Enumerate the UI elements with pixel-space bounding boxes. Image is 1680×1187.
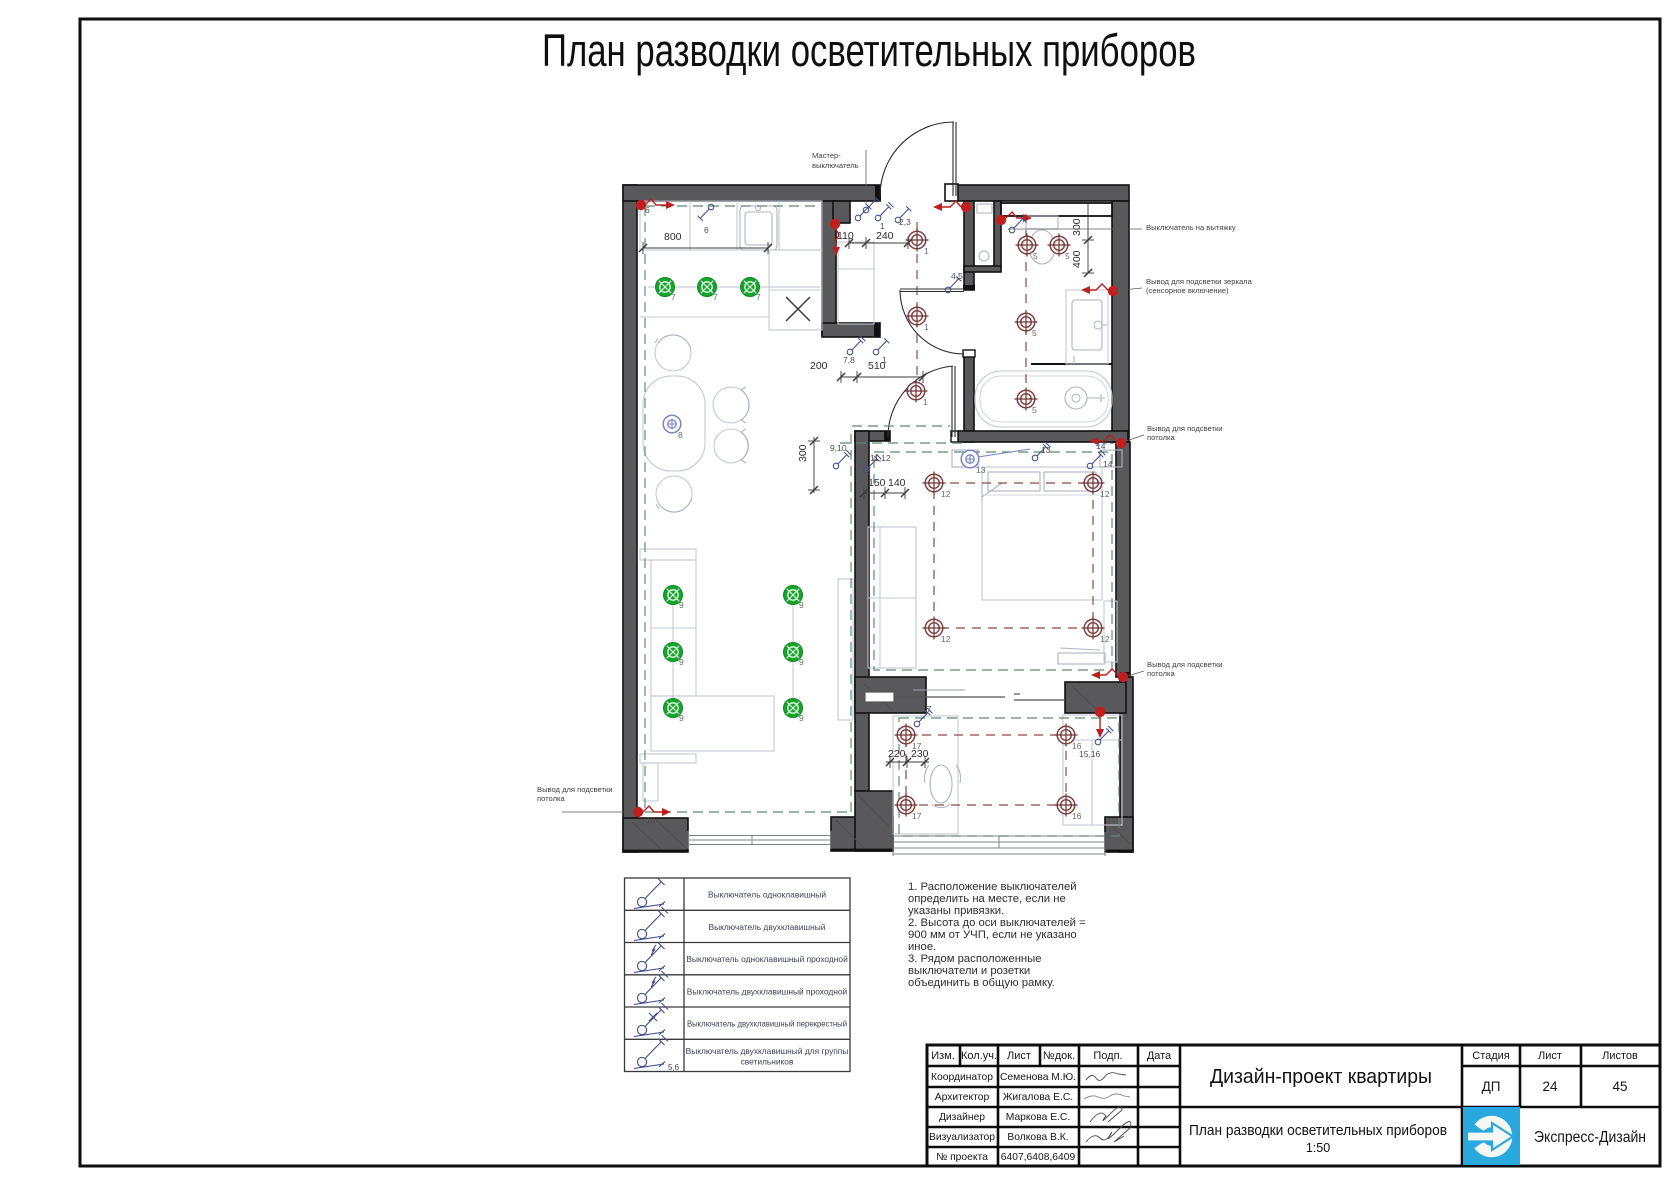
svg-text:5,6: 5,6 [668,1063,680,1072]
svg-text:Дизайн-проект квартиры: Дизайн-проект квартиры [1210,1066,1432,1088]
svg-text:9: 9 [679,600,684,610]
svg-text:объединить в общую рамку.: объединить в общую рамку. [908,977,1055,989]
svg-text:Экспресс-Дизайн: Экспресс-Дизайн [1534,1129,1646,1146]
svg-text:1: 1 [924,322,929,332]
svg-text:9: 9 [679,713,684,723]
svg-text:Выключатель двухклавишный пере: Выключатель двухклавишный перекрестный [687,1019,847,1029]
svg-text:Выключатель двухклавишный прох: Выключатель двухклавишный проходной [687,986,848,996]
svg-text:7: 7 [756,292,761,302]
svg-text:№ проекта: № проекта [936,1152,988,1163]
svg-text:12: 12 [1100,489,1110,499]
svg-text:110: 110 [837,230,854,242]
svg-text:Выключатель двухклавишный: Выключатель двухклавишный [709,922,826,932]
svg-text:17: 17 [912,811,922,821]
svg-text:14: 14 [1103,459,1113,469]
svg-text:План разводки осветительных пр: План разводки осветительных приборов [1189,1123,1447,1139]
svg-text:Визуализатор: Визуализатор [929,1132,995,1143]
svg-text:Вывод для подсветки: Вывод для подсветки [1147,424,1223,433]
svg-text:выключатель: выключатель [812,161,859,170]
svg-text:Архитектор: Архитектор [935,1092,990,1103]
svg-text:140: 140 [888,477,906,489]
svg-text:7: 7 [671,292,676,302]
svg-text:Маркова Е.С.: Маркова Е.С. [1006,1112,1070,1123]
svg-text:8: 8 [678,430,683,440]
svg-text:12: 12 [941,634,951,644]
svg-text:Дизайнер: Дизайнер [939,1112,985,1123]
svg-text:3. Рядом расположенные: 3. Рядом расположенные [908,953,1042,965]
svg-text:1:50: 1:50 [1306,1141,1330,1155]
svg-text:11,12: 11,12 [870,453,891,463]
svg-text:Листов: Листов [1602,1050,1638,1062]
svg-text:светильников: светильников [741,1057,794,1067]
svg-text:200: 200 [810,360,828,372]
svg-text:определить на месте, если не: определить на месте, если не [908,893,1066,905]
svg-text:230: 230 [911,748,929,760]
svg-text:7: 7 [713,292,718,302]
svg-text:240: 240 [876,230,894,242]
svg-text:Кол.уч.: Кол.уч. [961,1050,997,1062]
svg-text:900 мм от УЧП, если не указано: 900 мм от УЧП, если не указано [908,929,1077,941]
svg-text:15,16: 15,16 [1079,749,1101,759]
svg-text:потолка: потолка [537,794,566,803]
svg-text:6: 6 [645,205,650,215]
svg-text:Волкова В.К.: Волкова В.К. [1007,1132,1068,1143]
svg-text:4,5: 4,5 [951,271,963,281]
svg-text:Вывод для подсветки: Вывод для подсветки [1147,660,1223,669]
svg-text:24: 24 [1542,1079,1558,1094]
svg-text:9: 9 [799,600,804,610]
svg-text:13: 13 [1041,445,1051,455]
svg-text:№док.: №док. [1043,1050,1075,1062]
svg-text:(сенсорное включение): (сенсорное включение) [1146,286,1229,295]
svg-text:7,8: 7,8 [843,355,855,365]
svg-text:2. Высота до оси выключателей: 2. Высота до оси выключателей = [908,917,1086,929]
svg-text:5: 5 [1033,251,1038,261]
svg-text:17: 17 [922,704,932,714]
svg-text:9: 9 [799,713,804,723]
svg-text:800: 800 [664,231,682,243]
svg-text:1: 1 [924,246,929,256]
svg-text:Выключатель одноклавишный: Выключатель одноклавишный [708,890,826,900]
svg-text:Семенова М.Ю.: Семенова М.Ю. [1000,1072,1076,1083]
svg-text:9,10: 9,10 [830,443,847,453]
svg-text:Стадия: Стадия [1472,1050,1510,1062]
svg-text:Подп.: Подп. [1093,1050,1122,1062]
svg-text:5: 5 [1032,405,1037,415]
svg-text:12: 12 [941,489,951,499]
svg-text:1. Расположение выключателей: 1. Расположение выключателей [908,881,1077,893]
svg-text:Лист: Лист [1007,1050,1031,1062]
svg-text:Жигалова Е.С.: Жигалова Е.С. [1003,1092,1073,1103]
svg-text:5: 5 [1065,251,1070,261]
svg-text:Мастер-: Мастер- [812,151,841,160]
svg-text:12: 12 [1100,634,1110,644]
svg-text:выключатели и розетки: выключатели и розетки [908,965,1030,977]
svg-text:Выключатель двухклавишный для: Выключатель двухклавишный для группы [686,1046,849,1056]
svg-text:потолка: потолка [1147,669,1176,678]
svg-text:5: 5 [1032,328,1037,338]
svg-text:Лист: Лист [1538,1050,1562,1062]
svg-text:2,3: 2,3 [899,217,911,227]
svg-text:300: 300 [1071,218,1083,236]
svg-text:150: 150 [868,477,886,489]
svg-text:Выключатель на вытяжку: Выключатель на вытяжку [1146,223,1236,232]
svg-text:потолка: потолка [1147,433,1176,442]
svg-text:Вывод для подсветки зеркала: Вывод для подсветки зеркала [1146,277,1253,286]
svg-text:510: 510 [868,360,886,372]
svg-text:иное.: иное. [908,941,936,953]
svg-text:300: 300 [797,444,809,462]
svg-text:400: 400 [1071,250,1083,268]
svg-text:Вывод для подсветки: Вывод для подсветки [537,785,613,794]
svg-text:10: 10 [646,815,656,825]
svg-text:Дата: Дата [1147,1050,1172,1062]
svg-text:13: 13 [976,465,986,475]
svg-text:указаны привязки.: указаны привязки. [908,905,1004,917]
svg-text:6407,6408,6409: 6407,6408,6409 [1001,1152,1076,1163]
svg-text:Координатор: Координатор [931,1072,993,1083]
svg-text:9: 9 [679,657,684,667]
svg-text:45: 45 [1612,1079,1627,1094]
svg-text:9: 9 [799,657,804,667]
svg-text:Выключатель одноклавишный прох: Выключатель одноклавишный проходной [686,954,848,964]
svg-text:16: 16 [1072,811,1082,821]
svg-text:ДП: ДП [1482,1079,1501,1094]
svg-text:6: 6 [704,225,709,235]
svg-text:1: 1 [923,397,928,407]
svg-text:220: 220 [888,748,906,760]
svg-text:План разводки осветительных пр: План разводки осветительных приборов [542,25,1196,76]
svg-text:Изм.: Изм. [931,1050,955,1062]
